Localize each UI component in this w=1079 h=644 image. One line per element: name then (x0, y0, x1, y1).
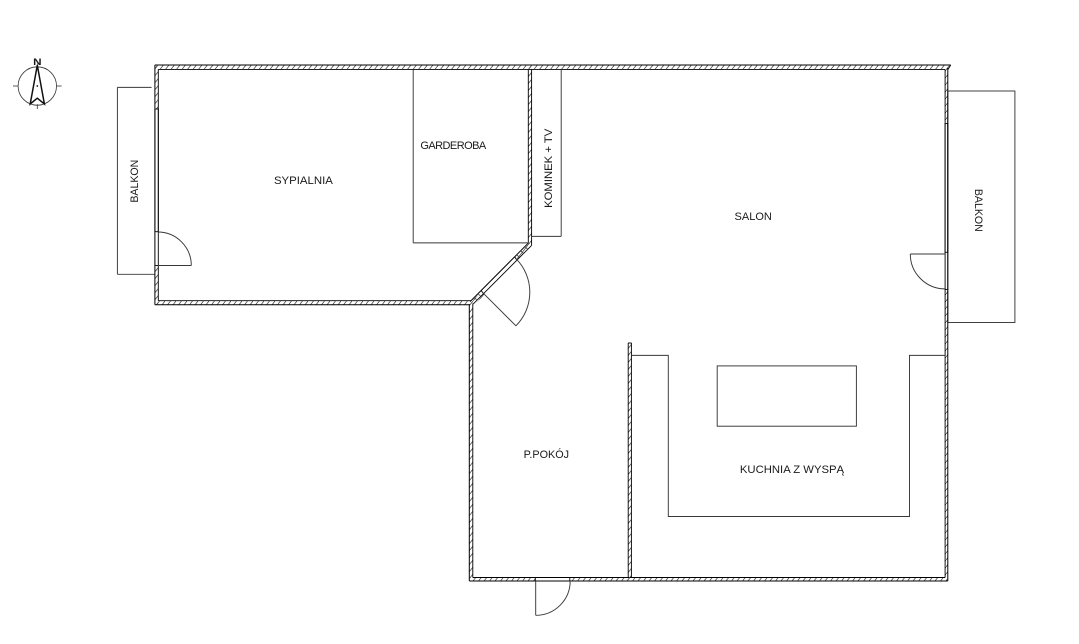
svg-text:SALON: SALON (735, 211, 772, 223)
svg-text:P.POKÓJ: P.POKÓJ (524, 448, 569, 461)
svg-text:KOMINEK + TV: KOMINEK + TV (543, 128, 555, 208)
svg-text:BALKON: BALKON (972, 189, 984, 232)
svg-text:KUCHNIA Z WYSPĄ: KUCHNIA Z WYSPĄ (740, 464, 845, 476)
svg-text:GARDEROBA: GARDEROBA (420, 140, 487, 152)
svg-text:BALKON: BALKON (129, 160, 141, 203)
svg-text:N: N (33, 57, 41, 68)
svg-text:SYPIALNIA: SYPIALNIA (274, 175, 333, 187)
